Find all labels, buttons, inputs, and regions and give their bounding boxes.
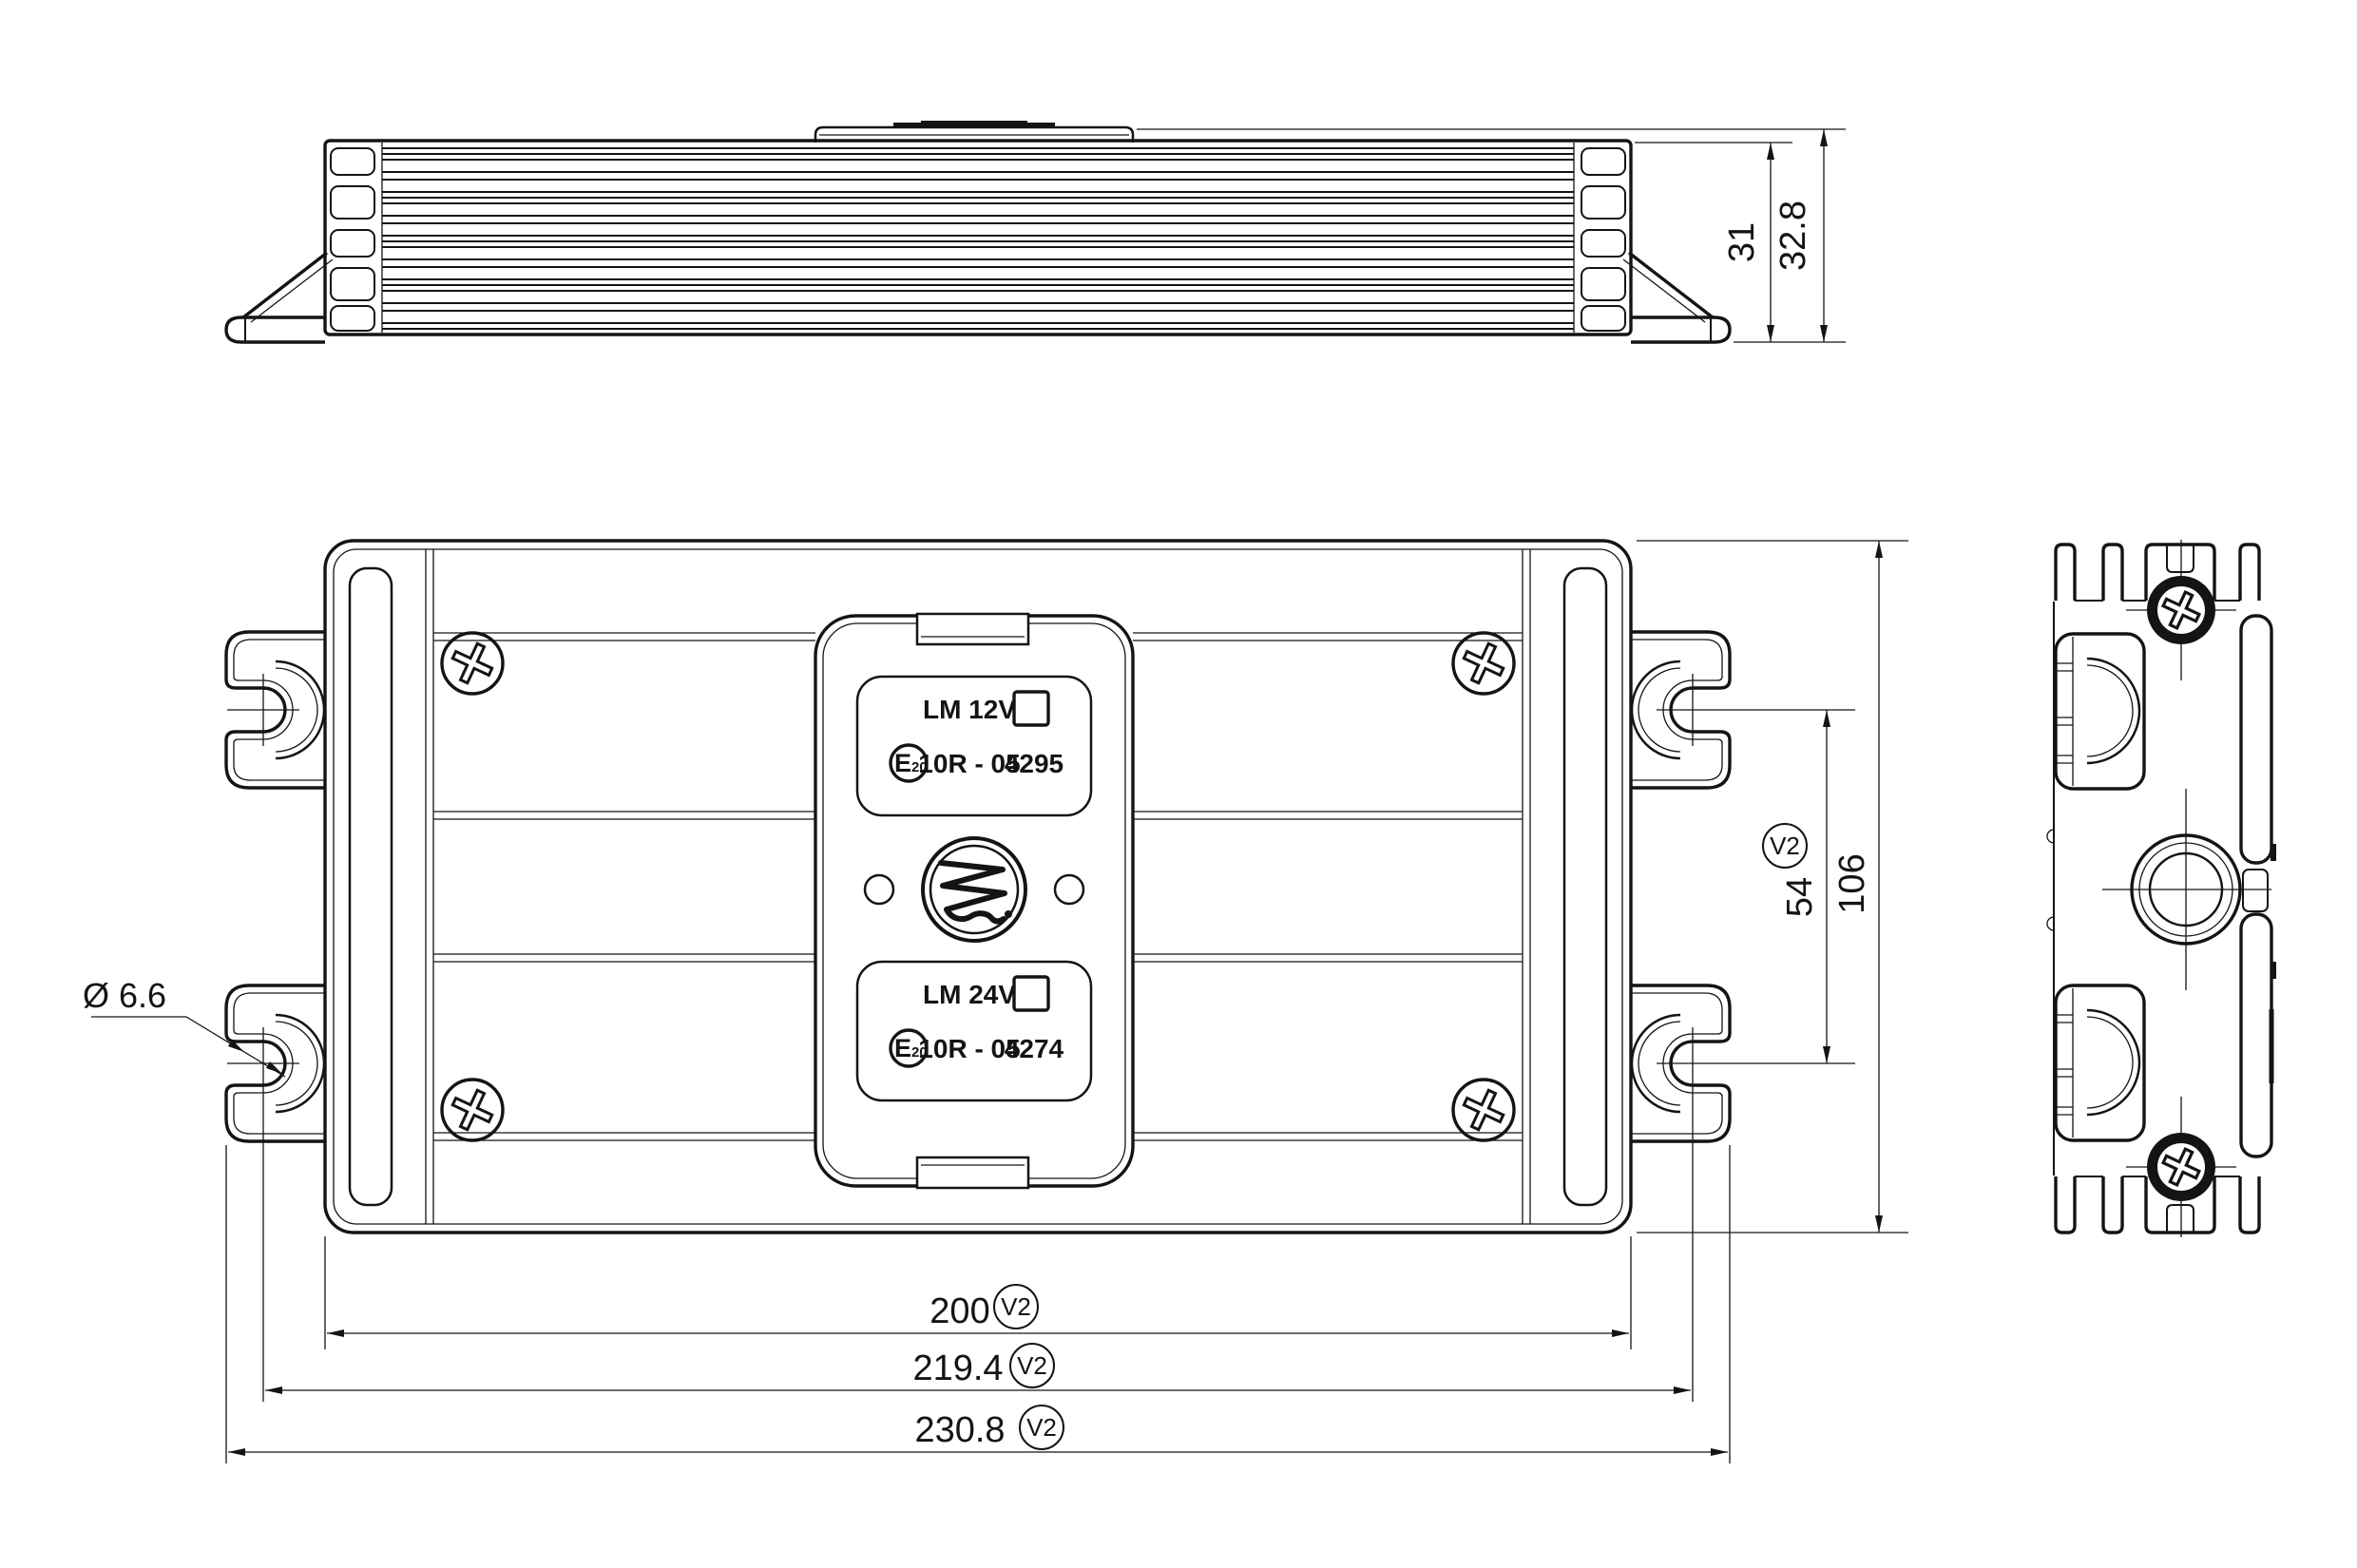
side-ear-bottom xyxy=(2056,985,2144,1140)
front-view: LM 12V E20 10R - 05 4295 LM xyxy=(226,541,1855,1402)
screw-bottom-left xyxy=(442,1080,503,1140)
version-tag-54: V2 xyxy=(1770,832,1800,860)
screw-bottom-right xyxy=(1453,1080,1514,1140)
approval-label-24v: LM 24V E20 10R - 05 4274 xyxy=(857,962,1091,1100)
technical-drawing-sheet: 31 32.8 xyxy=(0,0,2357,1568)
side-bump-1 xyxy=(2047,830,2054,843)
front-view-vertical-dimensions: V2 54 106 xyxy=(1637,541,1908,1233)
version-tag-200: V2 xyxy=(1001,1292,1031,1321)
end-ridge-right xyxy=(1564,568,1606,1205)
bottom-dimensions: 200 V2 219.4 V2 230.8 V2 xyxy=(226,1145,1730,1463)
version-tag-230: V2 xyxy=(1026,1413,1057,1442)
mounting-foot-right xyxy=(1623,253,1730,342)
approval-label-12v: LM 12V E20 10R - 05 4295 xyxy=(857,677,1091,815)
top-view xyxy=(226,122,1730,342)
screw-top-left xyxy=(442,633,503,694)
dim-width-slot-centers: 219.4 xyxy=(912,1348,1003,1388)
screw-top-right xyxy=(1453,633,1514,694)
version-tag-219: V2 xyxy=(1017,1351,1047,1380)
label-24v-number: 4274 xyxy=(1005,1034,1064,1063)
brand-logo xyxy=(923,838,1025,941)
dim-hole-diameter: Ø 6.6 xyxy=(83,976,166,1015)
cable-gland xyxy=(2102,789,2271,990)
heatsink-body-outline xyxy=(325,141,1631,335)
side-view xyxy=(2047,540,2273,1237)
dim-height-overall: 32.8 xyxy=(1773,201,1813,271)
dim-height-body: 31 xyxy=(1722,222,1762,262)
plate-tab-bottom xyxy=(917,1157,1028,1188)
label-12v-number: 4295 xyxy=(1005,749,1064,778)
face-recess-lines xyxy=(426,549,1530,1224)
cooling-fins xyxy=(382,143,1574,333)
end-cap-right xyxy=(1581,148,1625,331)
side-mounting-plate xyxy=(2241,616,2273,1157)
label-24v-checkbox xyxy=(1014,977,1048,1010)
dim-slot-spacing: 54 xyxy=(1780,877,1820,917)
dim-width-overall: 230.8 xyxy=(914,1410,1005,1450)
enclosure-inner-wall xyxy=(334,549,1622,1224)
drawing-views: 31 32.8 xyxy=(0,0,2357,1568)
dim-width-body: 200 xyxy=(929,1291,989,1331)
dim-front-height: 106 xyxy=(1832,853,1872,913)
label-24v-model: LM 24V xyxy=(923,980,1016,1009)
label-plate: LM 12V E20 10R - 05 4295 LM xyxy=(815,614,1133,1188)
side-ear-top xyxy=(2056,634,2144,789)
plate-hole-right xyxy=(1055,875,1083,904)
end-cap-left xyxy=(331,148,374,331)
mounting-foot-left xyxy=(226,253,333,342)
hole-diameter-callout: Ø 6.6 xyxy=(83,976,285,1077)
plate-tab-top xyxy=(917,614,1028,644)
label-12v-model: LM 12V xyxy=(923,695,1016,724)
label-12v-checkbox xyxy=(1014,692,1048,725)
plate-hole-left xyxy=(865,875,893,904)
side-bump-2 xyxy=(2047,917,2054,930)
end-ridge-left xyxy=(350,568,392,1205)
